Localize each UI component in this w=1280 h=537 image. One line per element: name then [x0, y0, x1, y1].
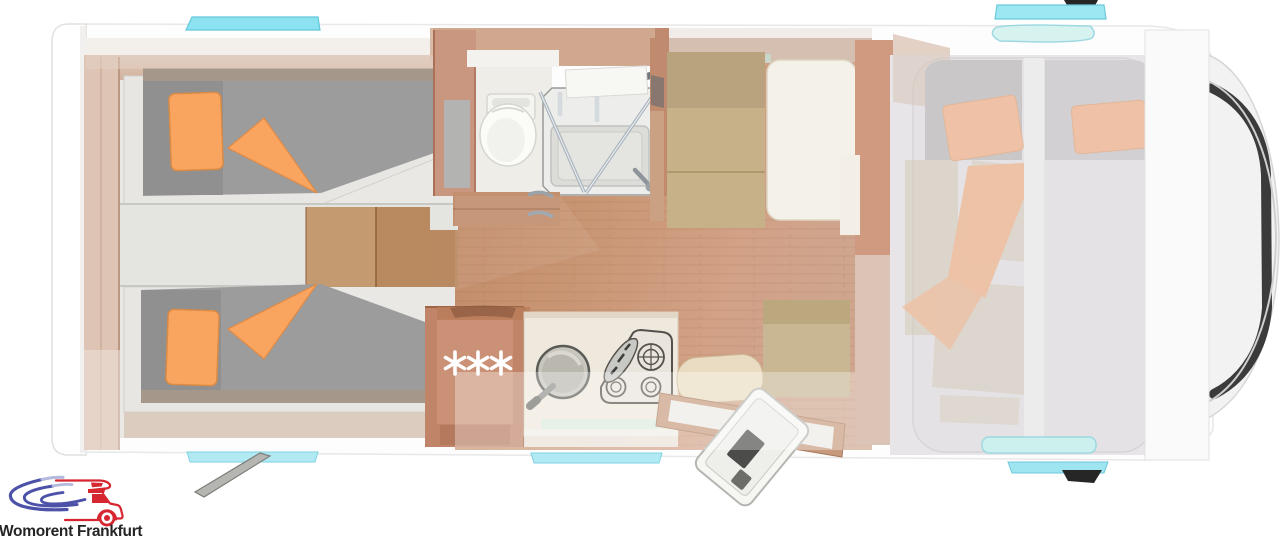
- svg-text:Womorent Frankfurt: Womorent Frankfurt: [0, 523, 142, 537]
